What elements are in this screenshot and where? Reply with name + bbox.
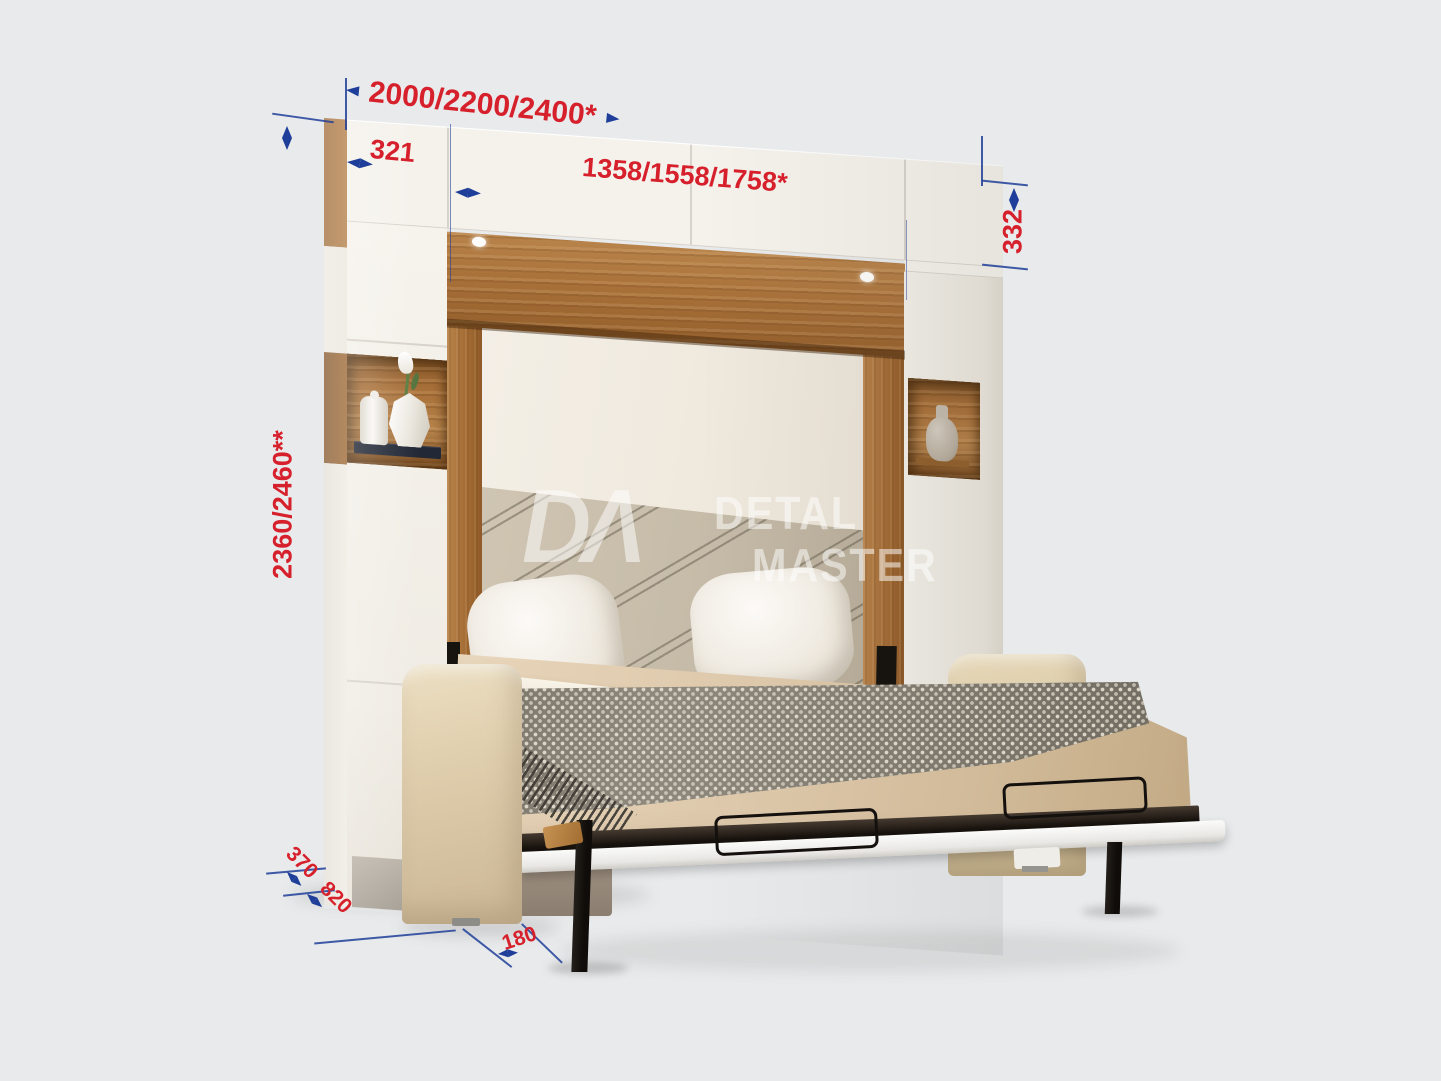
floor-shadow-leg-left (548, 962, 628, 974)
sofa-foot-glide-left (452, 918, 480, 926)
dim-label-top-cabinet-height: 332 (998, 209, 1029, 255)
open-shelf-left (347, 354, 447, 470)
witness-line (450, 124, 451, 282)
cabinet-side-panel-wood (324, 118, 347, 248)
led-spotlight-right (860, 271, 874, 282)
murphy-bed-dimension-diagram: DΛ DETAL MASTER 2000/2200/2400* 321 1358… (0, 0, 1441, 1081)
witness-line (314, 929, 456, 944)
witness-line (906, 220, 907, 300)
bed-support-leg-right (1105, 842, 1123, 914)
cabinet-side-niche-wood (324, 352, 347, 465)
dim-label-total-height: 2360/2460** (268, 405, 299, 605)
sofa-armrest-left (402, 664, 522, 924)
floor-shadow-leg-right (1082, 906, 1158, 917)
mattress-retainer-bar-left (714, 808, 879, 856)
decor-tulip-leaf (410, 372, 421, 391)
dim-label-left-cabinet-width: 321 (369, 134, 417, 169)
sofa-foot-glide-right-chrome (1022, 866, 1048, 872)
decor-jar (360, 396, 388, 446)
cabinet-side-panel (324, 246, 347, 354)
decor-ceramic-vase (926, 416, 958, 462)
decor-origami-vase (389, 392, 430, 449)
cabinet-side-panel-lower (324, 463, 347, 907)
cabinet-door-seam (447, 128, 449, 228)
decor-jar-lid (370, 390, 379, 400)
led-spotlight-left (472, 236, 486, 247)
open-shelf-right (908, 378, 980, 480)
mattress-retainer-bar-right (1002, 776, 1148, 819)
